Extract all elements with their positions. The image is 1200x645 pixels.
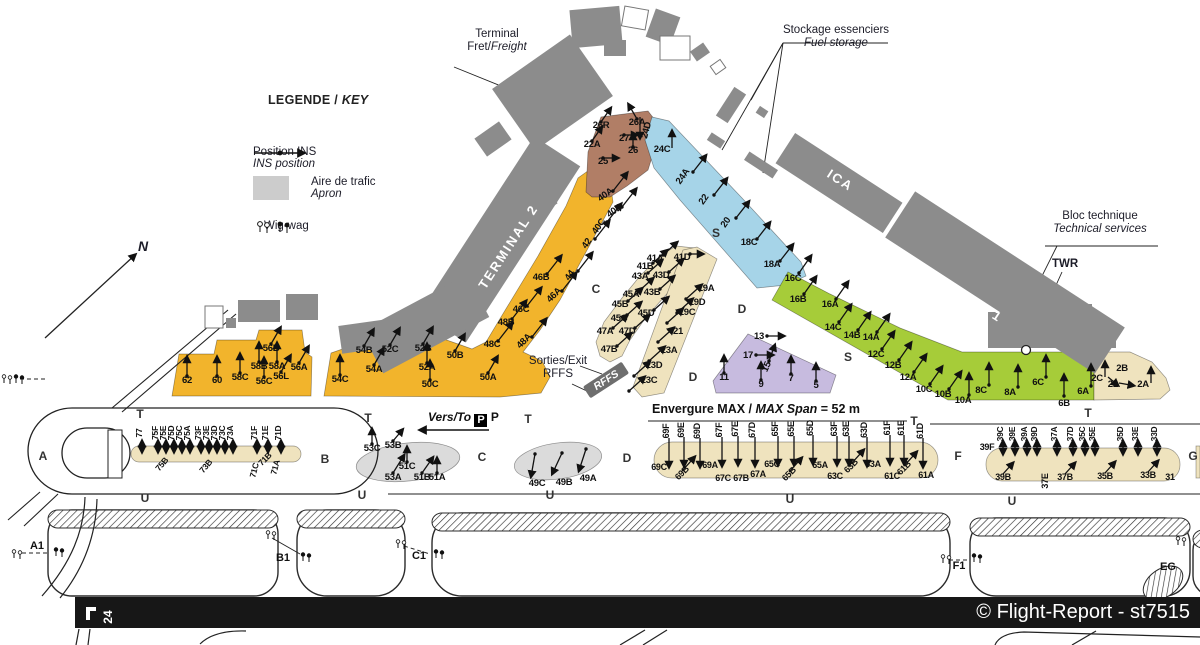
stand-label: 61E [896, 420, 906, 435]
stand-label: 13 [754, 331, 764, 342]
legend-ins: Position INSINS position [253, 146, 316, 170]
stand-label: 56L [273, 371, 289, 382]
taxiway-letter: U [546, 488, 555, 502]
taxiway-letter: C [592, 282, 601, 296]
stand-label: 26R [593, 120, 610, 131]
ins-dot [684, 297, 687, 300]
stand-label: 31 [1165, 472, 1175, 482]
stand-label: 47B [601, 344, 618, 355]
island-hatch [432, 513, 950, 531]
stand-label: 67D [747, 421, 757, 437]
stand-label: 63D [859, 421, 869, 437]
building [756, 106, 769, 118]
airport-chart: TERMINAL 2ICATERMINAL 1RFFS626058C58B58A… [0, 0, 1200, 645]
stand-label: 7 [789, 373, 794, 384]
taxiway-letter: T [524, 412, 532, 426]
wigwag-icon [8, 376, 12, 380]
stand-label: 50A [480, 372, 497, 383]
stand-label: 52A [419, 362, 436, 373]
stand-label: 65C [764, 459, 780, 469]
stand-label: 2C [1091, 373, 1103, 384]
stand-label: 2B [1116, 363, 1128, 374]
taxiway-letter: A [39, 449, 48, 463]
stand-label: 35C [1077, 426, 1087, 441]
map-path [76, 629, 79, 645]
stand-label: 69A [702, 460, 718, 470]
building [286, 294, 318, 320]
taxiway-letter: U [1008, 494, 1017, 508]
stand-label: 56A [291, 362, 308, 373]
stand-label: 35D [1115, 426, 1125, 441]
stand-label: 2L [1108, 379, 1119, 390]
stand-label: 8A [1004, 387, 1016, 398]
stand-label: 8C [975, 385, 987, 396]
stand-label: 63C [827, 471, 843, 481]
stand-label: 23A [661, 345, 678, 356]
ins-arrow-icon [253, 146, 315, 160]
stand-label: 33B [1140, 470, 1156, 480]
wigwag-icon [434, 550, 438, 554]
wigwag-icon [978, 555, 982, 559]
taxiway-letter: S [712, 226, 720, 240]
stand-label: 12A [900, 372, 917, 383]
wigwag-icon [402, 541, 406, 545]
building [744, 152, 778, 179]
wigwag-icon [12, 550, 16, 554]
stand-label: 46C [513, 304, 530, 315]
ins-dot [632, 374, 635, 377]
taxiway-letter: G [1188, 449, 1197, 463]
stand-label: 73A [225, 425, 235, 440]
taxiway-letter: D [689, 370, 698, 384]
stand-label: 10B [935, 389, 952, 400]
stand-label: 25 [598, 156, 609, 167]
taxiway-letter: D [623, 451, 632, 465]
taxiway-letter: D [738, 302, 747, 316]
stand-label: 49B [556, 477, 573, 488]
stand-label: 50B [447, 350, 464, 361]
stand-label: 14B [844, 330, 861, 341]
stand-label: 19C [679, 307, 696, 318]
stand-label: 65E [786, 421, 796, 436]
stand-label: 39E [1007, 426, 1017, 441]
stand-label: 58C [232, 372, 249, 383]
stand-label: 35E [1087, 426, 1097, 441]
stand-label: 54A [366, 364, 383, 375]
building [226, 318, 236, 328]
holding-point-label: EG [1160, 561, 1176, 573]
stand-label: 56B [263, 343, 280, 354]
wigwag-icon [972, 554, 976, 558]
vers-to-parking: Vers/To P P [428, 411, 499, 427]
holding-point-label: F1 [953, 560, 966, 572]
wigwag-icon [266, 531, 270, 535]
stand-label: 39A [1019, 426, 1029, 441]
stand-label: 39C [995, 426, 1005, 441]
wigwag-icon [440, 551, 444, 555]
ins-dot [533, 452, 536, 455]
ins-dot [765, 334, 768, 337]
rffs-exit-label: Sorties/ExitRFFS [529, 355, 587, 381]
taxiway-letter: U [141, 491, 150, 505]
stand-label: 41D [674, 252, 691, 263]
building [604, 40, 626, 56]
stand-label: 61A [918, 470, 934, 480]
stand-label: 2A [1137, 379, 1149, 390]
stand-label: 39F [980, 442, 995, 452]
taxiway-letter: T [136, 407, 144, 421]
ins-dot [754, 353, 757, 356]
taxiway-letter: T [910, 414, 918, 428]
stand-label: 65F [770, 421, 780, 436]
stand-label: 43D [653, 270, 670, 281]
taxiway-letter: U [786, 492, 795, 506]
stand-label: 75A [182, 425, 192, 440]
stand-label: 27 [619, 133, 629, 144]
island-hatch [297, 510, 405, 528]
wigwag-icon [1176, 537, 1180, 541]
stand-label: 53C [364, 443, 381, 454]
stand-label: 67F [714, 422, 724, 437]
stand-label: 61F [882, 420, 892, 435]
ins-dot [987, 383, 990, 386]
stand-label: 17 [743, 350, 753, 361]
building [710, 59, 726, 74]
stand-label: 47D [619, 326, 636, 337]
stand-label: 23C [641, 375, 658, 386]
stand-label: 77 [134, 428, 144, 437]
stand-label: 6B [1058, 398, 1070, 409]
stand-label: 22A [584, 139, 601, 150]
stand-label: 12B [885, 360, 902, 371]
ins-dot [1016, 385, 1019, 388]
stand-label: 16B [790, 294, 807, 305]
stand-label: 18A [764, 259, 781, 270]
stand-label: 50C [422, 379, 439, 390]
stand-label: 35B [1097, 471, 1113, 481]
stand-label: 56C [256, 376, 273, 387]
stand-label: 63A [865, 459, 881, 469]
taxiway-letter: C [478, 450, 487, 464]
runway-designator: 24 [101, 610, 115, 624]
stand-label: 51C [399, 461, 416, 472]
stand-label: 67B [733, 473, 749, 483]
max-span-note: Envergure MAX / MAX Span = 52 m [652, 402, 860, 416]
stand-label: 14C [825, 322, 842, 333]
taxiway-letter: T [1084, 406, 1092, 420]
stand-label: 69D [692, 422, 702, 438]
rffs-badge: RFFS [583, 362, 629, 399]
ins-dot [665, 321, 668, 324]
building [707, 132, 725, 148]
wigwag-icon [2, 375, 6, 379]
stand-label: 26 [628, 145, 638, 156]
bloc-technique-label: Bloc techniqueTechnical services [1053, 210, 1147, 236]
stand-label: 69C [651, 462, 667, 472]
stand-label: 9 [759, 379, 764, 390]
stand-label: 53B [385, 440, 402, 451]
ins-dot [627, 389, 630, 392]
stand-label: 67E [730, 421, 740, 436]
holding-point-label: C1 [412, 550, 426, 562]
loop-road-divider [108, 430, 122, 478]
stand-label: 37A [1049, 426, 1059, 441]
stand-label: 69E [676, 422, 686, 437]
stand-label: 43A [632, 271, 649, 282]
north-label: N [138, 238, 148, 254]
wigwag-icon [947, 556, 951, 560]
stand-label: 12C [868, 349, 885, 360]
building [716, 87, 746, 123]
stand-label: 67A [750, 469, 766, 479]
building [621, 6, 648, 30]
ins-dot [1089, 384, 1092, 387]
map-line [763, 43, 783, 173]
taxiway-letter: F [954, 449, 961, 463]
stand-guidance-arrow [836, 281, 849, 299]
stand-label: 49C [529, 478, 546, 489]
parking-icon: P [474, 414, 487, 427]
stand-label: 71F [249, 426, 259, 440]
stand-label: 63E [841, 421, 851, 436]
legend-title: LEGENDE / KEY [268, 93, 368, 107]
stand-label: 47A [597, 326, 614, 337]
building [660, 36, 690, 60]
stand-label: 37D [1065, 426, 1075, 441]
stand-label: 14A [863, 332, 880, 343]
ins-dot [734, 216, 737, 219]
wigwag-icon [307, 554, 311, 558]
stand-label: 65A [812, 460, 828, 470]
stand-label: 37B [1057, 472, 1073, 482]
stand-label: 58B [251, 361, 268, 372]
stand-label: 23D [646, 360, 663, 371]
stand-label: 33E [1130, 426, 1140, 441]
wigwag-icon [60, 549, 64, 553]
taxiway-letter: U [358, 488, 367, 502]
building [1036, 322, 1116, 348]
legend-apron: Aire de traficApron [253, 176, 376, 200]
stand-label: 6C [1032, 377, 1044, 388]
wigwag-icon [18, 551, 22, 555]
stand-label: 65D [805, 419, 815, 435]
ins-dot [584, 447, 587, 450]
taxiway-islands [48, 510, 1200, 607]
stand-label: 39D [1029, 426, 1039, 441]
stand-label: 16C [785, 273, 802, 284]
building [205, 306, 223, 328]
twr-marker [1022, 346, 1031, 355]
stand-label: 52C [382, 344, 399, 355]
ins-dot [593, 237, 596, 240]
stand-label: 45B [612, 299, 629, 310]
stand-label: 63F [829, 421, 839, 436]
stand-label: 18C [741, 237, 758, 248]
holding-point-label: B1 [276, 552, 290, 564]
stand-label: 62 [182, 375, 192, 386]
stand-label: 54B [356, 345, 373, 356]
wigwag-icon [396, 540, 400, 544]
taxiway-letter: S [844, 350, 852, 364]
stand-label: 33D [1149, 426, 1159, 441]
building [690, 42, 710, 61]
taxiway-letter: B [321, 452, 330, 466]
building [238, 300, 280, 322]
stand-label: 16A [822, 299, 839, 310]
map-path [88, 629, 90, 645]
terminal-fret-label: TerminalFret/Freight [467, 28, 526, 54]
stand-label: 52B [415, 343, 432, 354]
wigwag-icon [54, 548, 58, 552]
airport-map-canvas: TERMINAL 2ICATERMINAL 1RFFS626058C58B58A… [0, 0, 1200, 645]
stand-label: 37E [1040, 473, 1050, 488]
legend-wigwag: Wig-wag [256, 220, 309, 232]
wigwag-icon [941, 555, 945, 559]
stand-label: 10A [955, 395, 972, 406]
taxiway-letter: T [364, 411, 372, 425]
map-path [200, 631, 246, 644]
stand-label: 21 [673, 326, 684, 337]
ins-dot [1044, 375, 1047, 378]
wigwag-icon [272, 532, 276, 536]
stand-label: 19A [698, 283, 715, 294]
north-arrow-icon [45, 254, 136, 338]
stand-label: 71D [273, 425, 283, 440]
stand-label: 46B [533, 272, 550, 283]
map-path [643, 630, 667, 645]
stand-label: 48C [484, 339, 501, 350]
stand-label: 67C [715, 473, 731, 483]
twr-label: TWR [1052, 258, 1078, 271]
apron-71-77 [131, 446, 301, 462]
map-path [995, 632, 1200, 645]
stand-label: 54C [332, 374, 349, 385]
fuel-storage-label: Stockage essenciersFuel storage [783, 24, 889, 50]
stand-label: 39B [995, 472, 1011, 482]
stand-label: 53A [385, 472, 402, 483]
ins-dot [712, 193, 715, 196]
island-hatch [970, 518, 1190, 536]
building [1058, 304, 1092, 322]
ins-dot [560, 451, 563, 454]
map-path [620, 630, 645, 645]
stand-label: 43B [644, 287, 661, 298]
stand-label: 49A [580, 473, 597, 484]
apron-swatch-icon [253, 176, 289, 200]
holding-point-label: A1 [30, 540, 44, 552]
stand-label: 69F [661, 423, 671, 438]
stand-label: 71E [260, 425, 270, 440]
stand-guidance-arrow [622, 188, 637, 207]
wigwag-icon [14, 375, 18, 379]
wigwag-icon [20, 376, 24, 380]
stand-label: 24C [654, 144, 671, 155]
stand-label: 60 [212, 375, 222, 386]
building [474, 121, 511, 156]
wigwag-icon [1182, 538, 1186, 542]
wigwag-icon [301, 553, 305, 557]
stand-label: 6A [1077, 386, 1089, 397]
stand-label: 11 [719, 372, 729, 383]
stand-label: 51A [429, 472, 446, 483]
ins-dot [656, 340, 659, 343]
wigwag-icon [256, 220, 300, 234]
watermark: © Flight-Report - st7515 [976, 601, 1190, 624]
stand-label: 10C [916, 384, 933, 395]
